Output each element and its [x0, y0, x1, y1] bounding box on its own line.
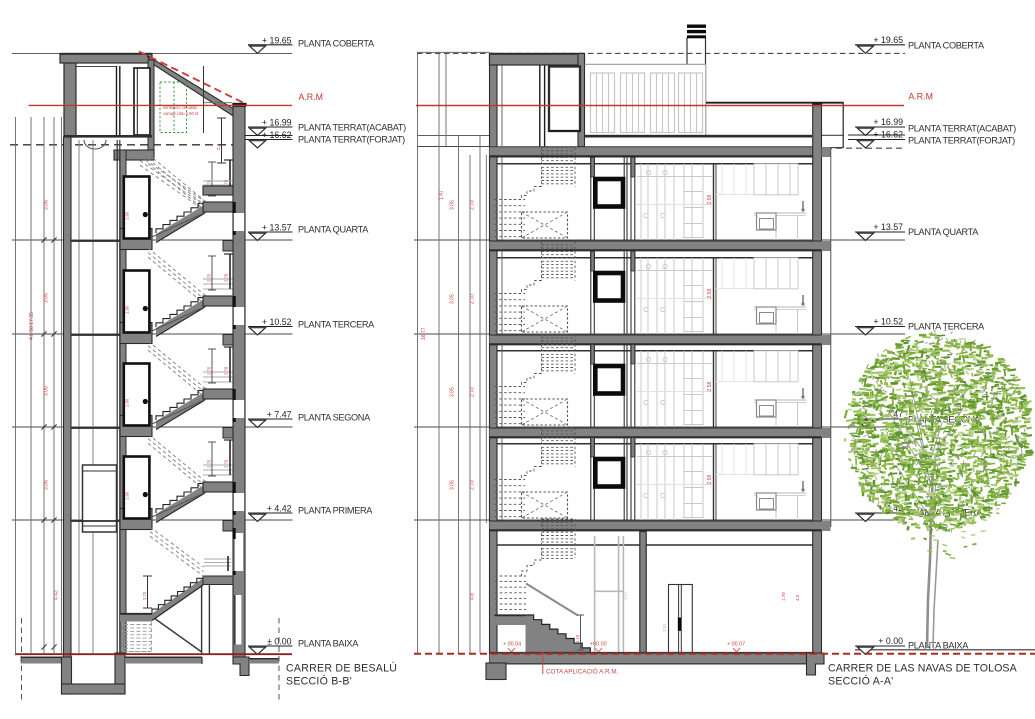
- svg-text:3.05: 3.05: [44, 480, 50, 490]
- svg-text:CARRER DE LAS NAVAS DE TOLOSA: CARRER DE LAS NAVAS DE TOLOSA: [828, 663, 1018, 675]
- svg-text:PLANTA BAIXA: PLANTA BAIXA: [298, 639, 359, 649]
- svg-text:16.77: 16.77: [421, 327, 427, 340]
- svg-text:1.90: 1.90: [125, 491, 130, 500]
- svg-text:2.70: 2.70: [142, 591, 147, 600]
- svg-text:2.75: 2.75: [207, 366, 212, 375]
- svg-text:1.78: 1.78: [781, 592, 786, 601]
- svg-text:+00.00: +00.00: [590, 642, 607, 648]
- svg-text:2.78: 2.78: [224, 273, 229, 282]
- svg-text:+ 19.65: + 19.65: [873, 35, 903, 45]
- svg-text:CARRER DE BESALÚ: CARRER DE BESALÚ: [286, 662, 397, 675]
- svg-text:PLANTA TERRAT(FORJAT): PLANTA TERRAT(FORJAT): [298, 135, 405, 145]
- svg-text:1.10: 1.10: [662, 623, 667, 632]
- svg-text:+ 16.99: + 16.99: [262, 118, 292, 128]
- svg-text:+ 16.62: + 16.62: [262, 130, 292, 140]
- svg-text:PLANTA PRIMERA: PLANTA PRIMERA: [298, 506, 373, 516]
- svg-text:+ 16.62: + 16.62: [873, 130, 903, 140]
- svg-text:4.42: 4.42: [54, 590, 60, 600]
- svg-text:3.67: 3.67: [623, 591, 628, 600]
- svg-text:PLANTA QUARTA: PLANTA QUARTA: [908, 227, 979, 237]
- svg-text:2.78: 2.78: [224, 366, 229, 375]
- svg-text:2.2: 2.2: [216, 143, 221, 150]
- svg-text:PLANTA BAIXA: PLANTA BAIXA: [908, 641, 969, 651]
- svg-text:A.R.M: A.R.M: [909, 92, 933, 102]
- svg-text:3.05: 3.05: [44, 386, 50, 396]
- svg-text:PLANTA TERRAT(FORJAT): PLANTA TERRAT(FORJAT): [908, 136, 1015, 146]
- svg-text:PLANTA COBERTA: PLANTA COBERTA: [298, 39, 375, 49]
- svg-text:3.05: 3.05: [44, 293, 50, 303]
- svg-text:PLANTA TERRAT(ACABAT): PLANTA TERRAT(ACABAT): [298, 123, 406, 133]
- svg-text:1.90: 1.90: [125, 305, 130, 314]
- svg-text:+ 00.04: + 00.04: [503, 642, 521, 648]
- svg-text:2.78: 2.78: [224, 459, 229, 468]
- svg-text:+ 13.57: + 13.57: [262, 223, 292, 233]
- svg-text:PLANTA TERCERA: PLANTA TERCERA: [298, 319, 375, 329]
- svg-text:1.90: 1.90: [125, 398, 130, 407]
- svg-text:PLANTA COBERTA: PLANTA COBERTA: [908, 40, 985, 50]
- svg-text:3.05: 3.05: [450, 387, 456, 397]
- svg-text:2.75: 2.75: [207, 273, 212, 282]
- svg-text:PLANTA QUARTA: PLANTA QUARTA: [298, 225, 369, 235]
- svg-text:+ 10.52: + 10.52: [262, 317, 292, 327]
- svg-text:A.R.M: A.R.M: [299, 92, 323, 102]
- svg-text:4.8: 4.8: [470, 593, 476, 600]
- svg-text:2.58: 2.58: [707, 195, 713, 205]
- svg-text:SECCIÓ A-A': SECCIÓ A-A': [828, 675, 893, 688]
- svg-text:1.47: 1.47: [439, 190, 445, 200]
- svg-text:2.58: 2.58: [707, 382, 713, 392]
- svg-text:SECCIÓ B-B': SECCIÓ B-B': [286, 675, 352, 688]
- svg-text:3.05: 3.05: [450, 480, 456, 490]
- svg-text:camap.l.lat=1.90 st: camap.l.lat=1.90 st: [163, 111, 199, 116]
- svg-text:2.70: 2.70: [470, 294, 476, 304]
- svg-text:PLANTA TERRAT(ACABAT): PLANTA TERRAT(ACABAT): [908, 124, 1016, 134]
- svg-text:2.58: 2.58: [707, 289, 713, 299]
- svg-text:2.58: 2.58: [707, 475, 713, 485]
- svg-text:+ 13.57: + 13.57: [873, 222, 903, 232]
- svg-text:2.70: 2.70: [470, 200, 476, 210]
- svg-text:3.05: 3.05: [450, 200, 456, 210]
- svg-text:+ 16.99: + 16.99: [873, 117, 903, 127]
- svg-text:2.70: 2.70: [470, 480, 476, 490]
- svg-text:+ 7.47: + 7.47: [267, 410, 292, 420]
- svg-text:+ 00.07: + 00.07: [727, 642, 745, 648]
- svg-text:3.05: 3.05: [450, 294, 456, 304]
- svg-text:2.70: 2.70: [470, 387, 476, 397]
- svg-text:1.10: 1.10: [575, 634, 580, 643]
- svg-text:+ 0.00: + 0.00: [878, 636, 903, 646]
- svg-text:+ 19.65: + 19.65: [262, 35, 292, 45]
- svg-text:4.8.50 17.35: 4.8.50 17.35: [29, 312, 35, 340]
- svg-text:COTA APLICACIÓ A.R.M.: COTA APLICACIÓ A.R.M.: [546, 667, 619, 676]
- svg-text:1.90: 1.90: [125, 211, 130, 220]
- svg-text:PLANTA SEGONA: PLANTA SEGONA: [298, 412, 371, 422]
- svg-text:4.5: 4.5: [795, 594, 800, 601]
- svg-text:2.75: 2.75: [207, 459, 212, 468]
- svg-text:+ 10.52: + 10.52: [873, 317, 903, 327]
- svg-text:3.05: 3.05: [44, 200, 50, 210]
- svg-text:+ 4.42: + 4.42: [267, 504, 292, 514]
